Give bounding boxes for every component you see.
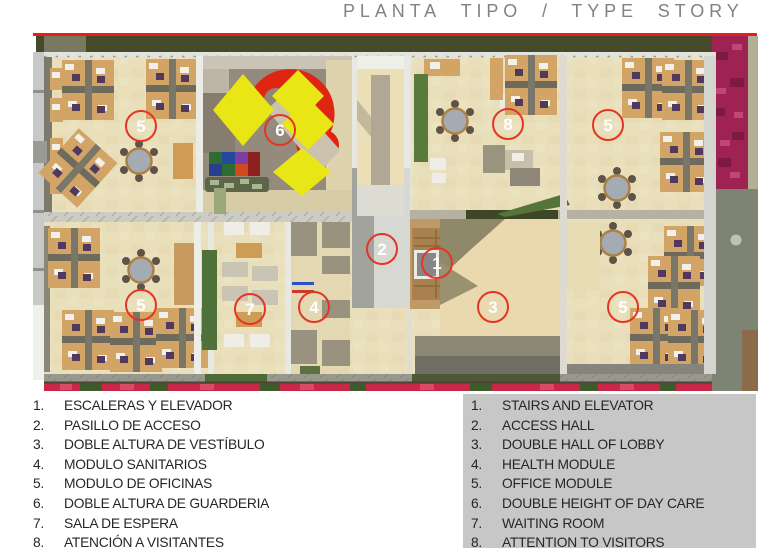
svg-text:2: 2 xyxy=(377,240,386,259)
svg-text:5: 5 xyxy=(136,296,145,315)
svg-text:5: 5 xyxy=(618,298,627,317)
svg-text:1: 1 xyxy=(432,254,441,273)
svg-text:6: 6 xyxy=(275,121,284,140)
svg-text:4: 4 xyxy=(309,298,319,317)
svg-text:8: 8 xyxy=(503,115,512,134)
svg-text:5: 5 xyxy=(136,117,145,136)
svg-text:5: 5 xyxy=(603,116,612,135)
svg-text:3: 3 xyxy=(488,298,497,317)
svg-text:7: 7 xyxy=(245,300,254,319)
